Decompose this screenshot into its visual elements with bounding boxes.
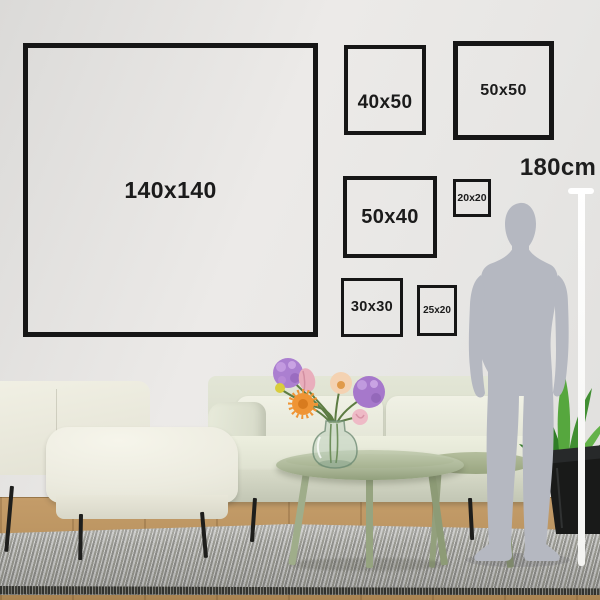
armchair-leg [78, 514, 83, 560]
frame-size-label: 40x50 [358, 93, 413, 112]
armchair-seat-cushion [46, 427, 238, 503]
frame-25x20: 25x20 [417, 285, 457, 336]
frame-size-label: 25x20 [423, 306, 451, 316]
frame-50x50: 50x50 [453, 41, 554, 140]
frame-size-label: 20x20 [457, 193, 486, 204]
frame-size-label: 50x50 [480, 83, 527, 99]
big-coffee-table [276, 450, 464, 480]
height-measure-line [578, 188, 585, 566]
frame-30x30: 30x30 [341, 278, 403, 337]
frame-50x40: 50x40 [343, 176, 437, 258]
frame-140x140: 140x140 [23, 43, 318, 337]
frame-size-label: 140x140 [124, 179, 216, 202]
frame-40x50: 40x50 [344, 45, 426, 135]
frame-size-label: 30x30 [351, 300, 393, 315]
wall-art-size-guide-scene: 140x140 40x50 50x50 50x40 20x20 30x30 25… [0, 0, 600, 600]
frame-size-label: 50x40 [361, 207, 419, 227]
big-table-leg [366, 476, 373, 568]
frame-20x20: 20x20 [453, 179, 491, 217]
height-label: 180cm [518, 156, 598, 180]
